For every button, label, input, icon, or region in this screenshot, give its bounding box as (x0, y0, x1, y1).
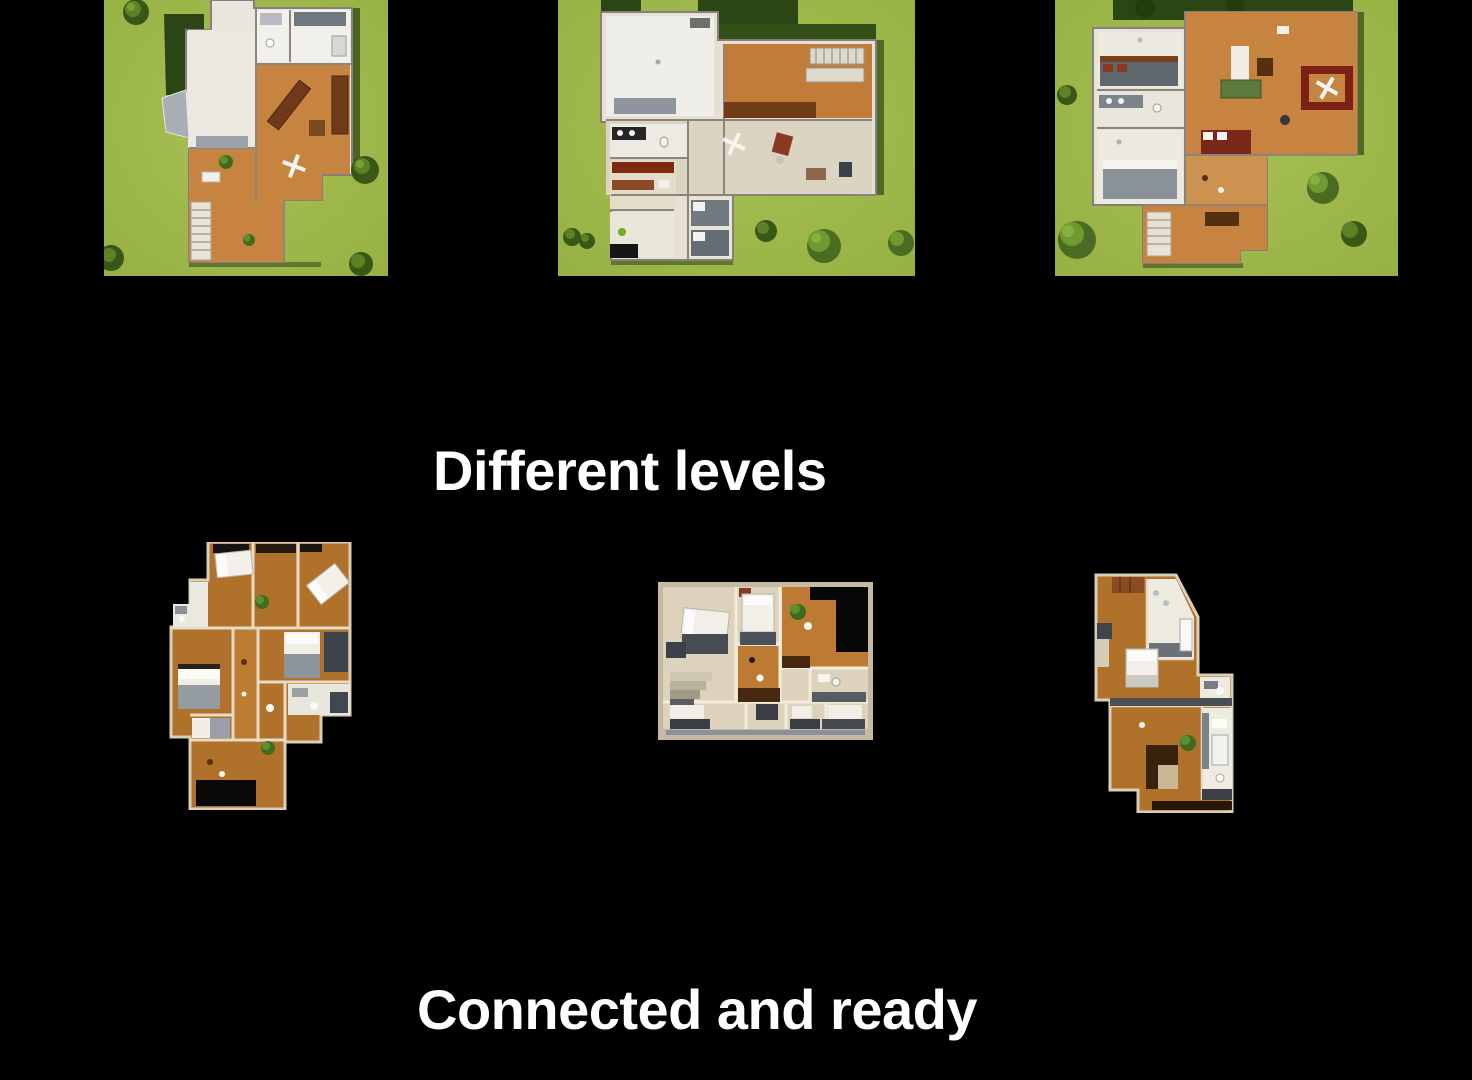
floorplan-image-interior-3 (1092, 573, 1239, 813)
caption-connected-and-ready: Connected and ready (417, 982, 977, 1038)
floorplan-image-site-level-3 (1055, 0, 1398, 276)
caption-different-levels: Different levels (433, 443, 827, 499)
bed (178, 685, 220, 709)
living-room (188, 30, 256, 148)
closet (1112, 577, 1144, 593)
staircase (1147, 212, 1171, 256)
floorplan-image-interior-2 (658, 582, 873, 740)
floorplan-image-site-level-1 (104, 0, 388, 276)
floorplan-image-interior-1 (158, 542, 358, 810)
site-plan-level-2-graphic (558, 0, 915, 276)
floorplan-image-site-level-2 (558, 0, 915, 276)
bathroom-left (173, 582, 208, 627)
bed-blanket (682, 634, 728, 654)
dark-floor (196, 780, 256, 806)
porch-roof (162, 90, 189, 138)
site-plan-level-1-graphic (104, 0, 388, 276)
staircase (191, 202, 211, 260)
kitchen-counter (612, 162, 674, 173)
site-plan-level-3-graphic (1055, 0, 1398, 276)
interior-plan-3-graphic (1092, 573, 1239, 813)
green-sofa (1221, 80, 1261, 98)
dark-floor (836, 598, 868, 652)
interior-plan-2-graphic (658, 582, 873, 740)
hallway (234, 629, 256, 740)
bathtub (1180, 619, 1192, 651)
bed-gray (1103, 169, 1177, 199)
slide-canvas: Different levels (0, 0, 1472, 1080)
interior-plan-1-graphic (158, 542, 358, 810)
